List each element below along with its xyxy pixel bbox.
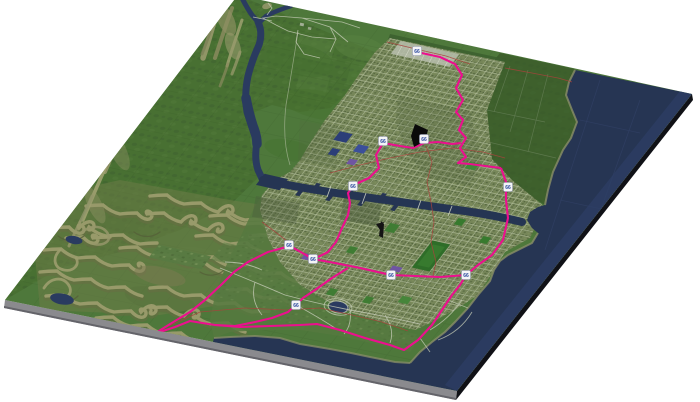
svg-text:66: 66 — [380, 139, 386, 145]
svg-text:66: 66 — [463, 273, 469, 279]
svg-text:66: 66 — [310, 257, 316, 263]
svg-text:66: 66 — [421, 137, 427, 143]
svg-text:66: 66 — [388, 273, 394, 279]
svg-text:66: 66 — [505, 185, 511, 191]
svg-text:66: 66 — [293, 303, 299, 309]
svg-text:66: 66 — [350, 184, 356, 190]
svg-text:66: 66 — [414, 49, 420, 55]
svg-text:66: 66 — [286, 243, 292, 249]
